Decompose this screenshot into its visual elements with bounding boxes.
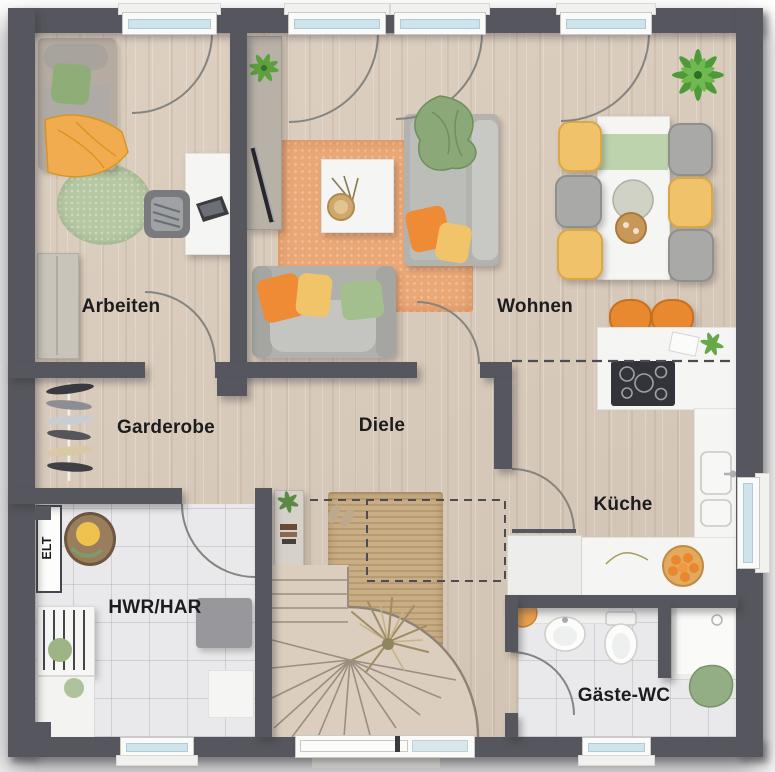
hall-sideboard [274,490,304,572]
entry-step [312,757,440,768]
window-glass [566,19,646,29]
pillow-green-bed [50,62,91,105]
shower [671,602,740,680]
rug-jute-hall [328,492,443,650]
room-label-arbeiten: Arbeiten [82,296,161,318]
wall-hwr-stairs [255,488,272,737]
wall-wc-top [505,595,738,608]
wall-exterior-left [8,8,35,757]
room-label-kueche: Küche [593,494,652,516]
pillow-green-sofa2 [339,279,385,321]
wall-kueche-h [480,362,512,378]
pillow-yellow-sofa1 [434,221,473,264]
pillow-yellow-sofa2 [295,272,333,317]
dining-chair [668,229,714,282]
wall-kueche-v [494,378,512,469]
wardrobe [37,253,79,359]
room-label-garderobe: Garderobe [117,417,215,439]
drying-rack [37,606,95,676]
wall-arbeiten-garderobe [8,362,145,378]
dining-chair [668,177,713,228]
wall-garderobe-stub [217,378,247,396]
window-sill [116,755,198,766]
office-chair-cushion [151,197,183,231]
laundry-basket [64,512,116,566]
desk [185,153,236,255]
room-label-wohnen: Wohnen [497,296,573,318]
window-glass [743,483,753,563]
window-glass [588,743,645,752]
table-runner [597,134,668,170]
room-label-diele: Diele [359,415,405,437]
room-label-elt: ELT [40,536,54,559]
cooktop [611,361,675,406]
boiler-unit [196,598,252,648]
floor-plan: Arbeiten Wohnen Garderobe Diele Küche HW… [0,0,775,772]
wall-nub-hwr-bottom [35,722,51,737]
wall-shower-partition [658,602,671,678]
sofa-right-back [472,120,498,260]
room-label-gaeste-wc: Gäste-WC [578,685,670,707]
dining-chair [668,123,713,176]
window-glass [400,19,480,29]
entry-door-leaf [300,740,408,752]
rug-green-round [57,164,152,245]
window-glass [294,19,380,29]
wall-nub-hwr-top [35,506,51,520]
window-glass [126,743,188,752]
coffee-table [321,159,394,233]
window-glass [128,19,211,29]
wall-wc-left-lower [505,713,518,737]
wall-wc-left-upper [505,595,518,652]
hwr-small-cabinet [208,670,254,718]
dining-chair [557,229,603,280]
wall-exterior-right [736,8,763,757]
fridge [507,535,582,597]
wall-wohnen-diele [215,362,417,378]
dining-chair [558,121,602,172]
room-label-hwr: HWR/HAR [108,597,201,619]
kitchen-counter-right [694,408,740,550]
wall-arbeiten-wohnen [230,33,247,378]
wall-garderobe-hwr [8,488,182,504]
kitchen-counter-lower [579,537,740,597]
window-sill [578,755,655,766]
dining-chair [555,175,602,228]
tv-sideboard [246,36,282,230]
entry-door-handle [395,736,400,752]
entry-door-sidelight [412,740,468,752]
